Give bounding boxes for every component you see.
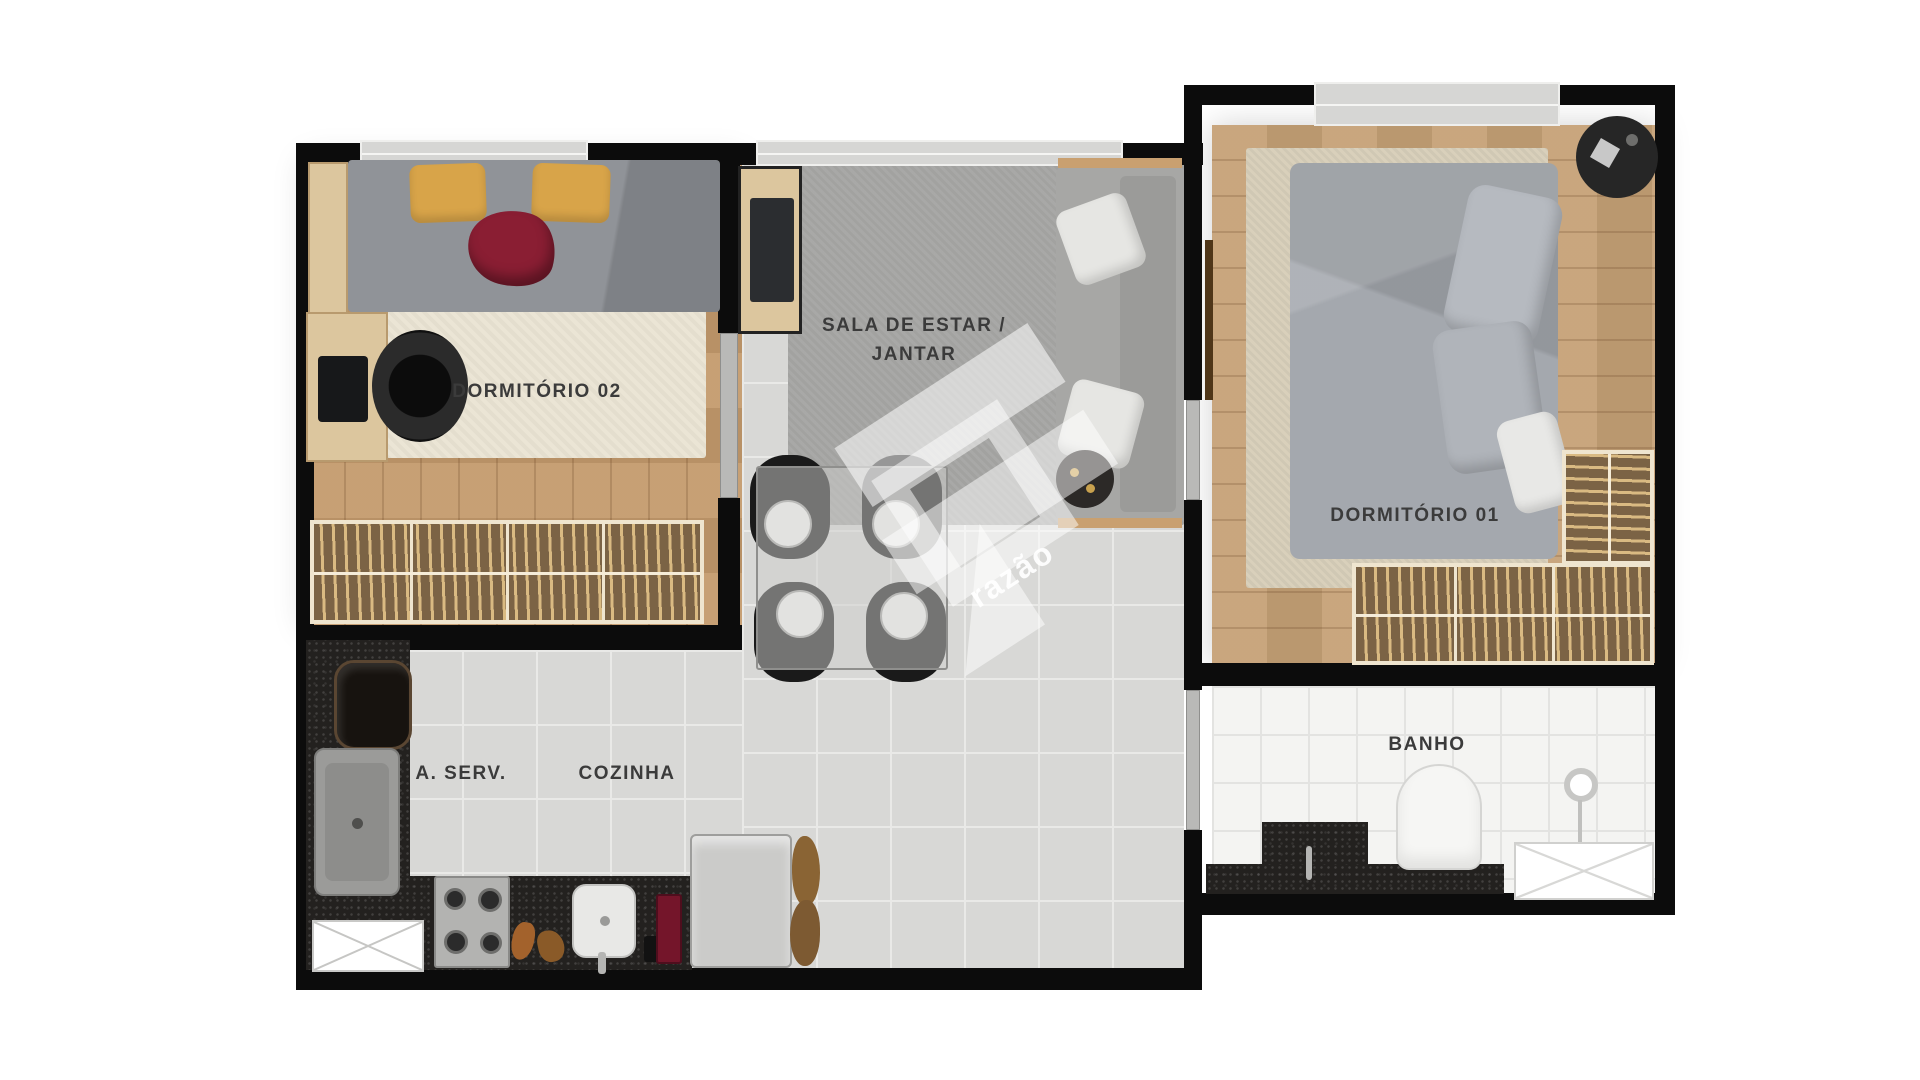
wall-segment bbox=[1184, 85, 1202, 400]
wine-crate bbox=[656, 894, 682, 964]
wall-segment bbox=[1184, 830, 1202, 990]
aserv-label: A. SERV. bbox=[415, 763, 506, 785]
counter-bowl bbox=[334, 660, 412, 750]
stove-burner bbox=[444, 930, 468, 954]
dorm01-round-rug bbox=[1576, 116, 1658, 198]
stove-burner bbox=[480, 932, 502, 954]
wall-segment bbox=[296, 968, 1202, 990]
closet-divider bbox=[1552, 567, 1555, 661]
plate bbox=[764, 500, 812, 548]
closet-divider bbox=[410, 524, 413, 620]
dorm01-closet-bottom bbox=[1352, 563, 1654, 665]
dorm01-door bbox=[1186, 400, 1200, 500]
cozinha-label: COZINHA bbox=[578, 763, 675, 785]
plate bbox=[880, 592, 928, 640]
bath-faucet bbox=[1306, 846, 1312, 880]
bath-door bbox=[1186, 690, 1200, 830]
dorm02-desk-monitor bbox=[318, 356, 368, 422]
reserved-appliance-space bbox=[312, 920, 424, 972]
round-rug-decor bbox=[1626, 134, 1638, 146]
dorm02-pillow-left bbox=[409, 163, 487, 224]
toilet bbox=[1396, 764, 1482, 870]
dining-table-glass bbox=[756, 466, 948, 670]
side-table bbox=[1056, 450, 1114, 508]
dorm02-closet bbox=[310, 520, 704, 624]
tv bbox=[750, 198, 794, 302]
living-label-line1: SALA DE ESTAR / bbox=[822, 315, 1006, 337]
dorm02-sliding-door bbox=[720, 333, 738, 498]
closet-divider bbox=[1454, 567, 1457, 661]
wall-segment bbox=[1202, 663, 1660, 686]
fridge bbox=[690, 834, 792, 968]
sink-faucet bbox=[598, 952, 606, 974]
shower-tray bbox=[1514, 842, 1654, 900]
laundry-tank bbox=[314, 748, 400, 896]
sofa-wood-arm-bottom bbox=[1058, 518, 1182, 528]
wall-segment bbox=[718, 143, 740, 333]
round-rug-decor bbox=[1590, 138, 1620, 168]
dorm01-door-leaf bbox=[1205, 240, 1213, 400]
sofa-wood-arm-top bbox=[1058, 158, 1182, 168]
shower-head bbox=[1564, 768, 1598, 802]
sink-drain bbox=[600, 916, 610, 926]
kitchen-tall-plant bbox=[792, 836, 820, 906]
living-label-line2: JANTAR bbox=[872, 344, 957, 366]
kitchen-tall-plant bbox=[790, 900, 820, 966]
dorm01-label: DORMITÓRIO 01 bbox=[1330, 505, 1499, 527]
shower-pipe bbox=[1578, 800, 1582, 842]
laundry-tank-knob bbox=[352, 818, 363, 829]
dorm01-closet-right bbox=[1562, 450, 1654, 565]
side-table-decor bbox=[1086, 484, 1095, 493]
shower-tray-x-icon bbox=[1516, 844, 1652, 898]
kitchen-sink bbox=[572, 884, 636, 958]
plate bbox=[776, 590, 824, 638]
dorm02-label: DORMITÓRIO 02 bbox=[452, 381, 621, 403]
dorm02-pillow-right bbox=[531, 163, 611, 224]
plate bbox=[872, 500, 920, 548]
floor-plan: DORMITÓRIO 02 SALA DE ESTAR / JANTAR bbox=[0, 0, 1920, 1080]
side-table-decor bbox=[1070, 468, 1079, 477]
stove-burner bbox=[444, 888, 466, 910]
closet-divider bbox=[602, 524, 605, 620]
wall-segment bbox=[1184, 85, 1314, 105]
wall-segment bbox=[1184, 500, 1202, 690]
reserved-space-x-icon bbox=[314, 922, 422, 970]
closet-divider bbox=[506, 524, 509, 620]
stove bbox=[434, 876, 510, 968]
banho-label: BANHO bbox=[1388, 734, 1465, 756]
stove-burner bbox=[478, 888, 502, 912]
wall-segment bbox=[1655, 85, 1675, 915]
dorm02-side-shelf bbox=[308, 162, 348, 314]
dorm01-window bbox=[1314, 82, 1560, 126]
